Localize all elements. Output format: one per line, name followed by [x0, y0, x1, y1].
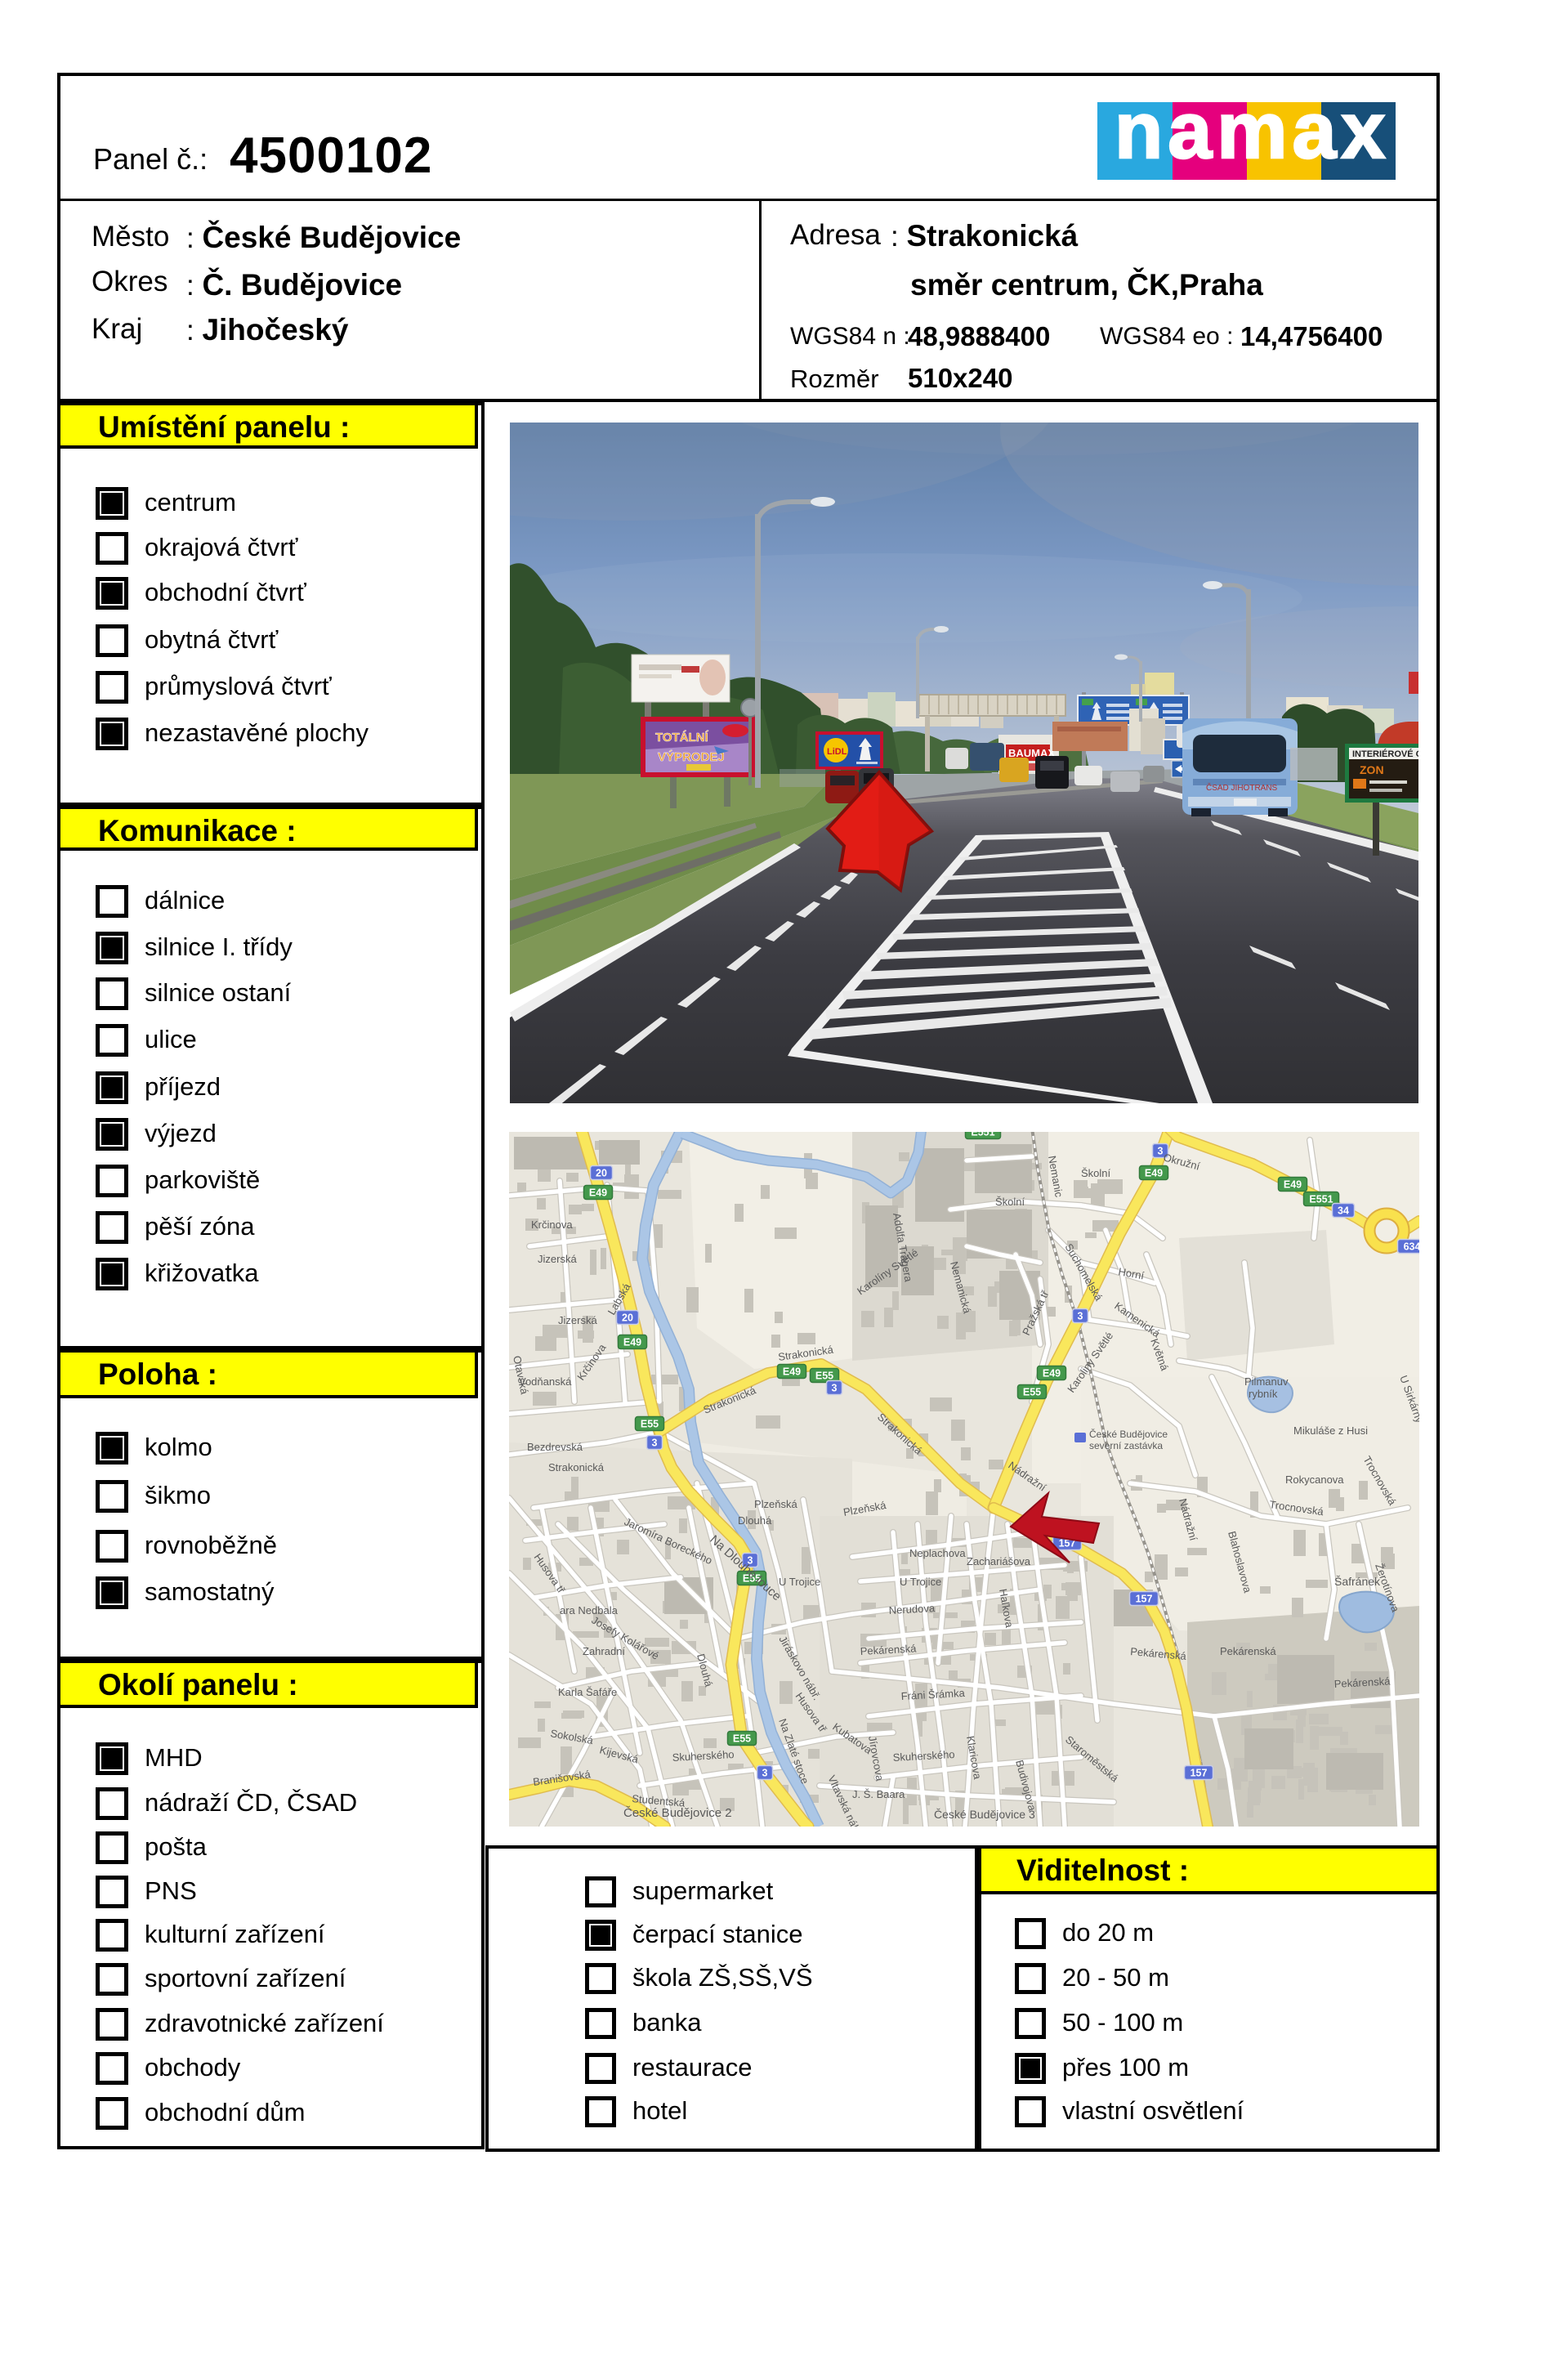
svg-text:3: 3 — [832, 1383, 838, 1394]
svg-text:TOTÁLNÍ: TOTÁLNÍ — [655, 731, 709, 745]
svg-text:E49: E49 — [783, 1366, 801, 1378]
svg-text:E49: E49 — [1284, 1179, 1302, 1191]
svg-text:České Budějovice 2: České Budějovice 2 — [623, 1806, 732, 1820]
svg-text:E49: E49 — [1043, 1368, 1061, 1380]
svg-text:rybník: rybník — [1249, 1388, 1278, 1400]
svg-text:E55: E55 — [815, 1371, 833, 1382]
svg-text:Dlouhá: Dlouhá — [738, 1514, 772, 1527]
svg-text:ZON: ZON — [1360, 763, 1384, 776]
svg-text:3: 3 — [762, 1768, 768, 1779]
svg-text:20: 20 — [622, 1312, 633, 1324]
svg-text:E55: E55 — [1023, 1387, 1041, 1398]
svg-text:20: 20 — [596, 1168, 607, 1179]
svg-text:Nerudova: Nerudova — [888, 1602, 936, 1617]
svg-text:634: 634 — [1404, 1241, 1419, 1253]
svg-text:Jizerská: Jizerská — [558, 1314, 597, 1326]
svg-text:3: 3 — [652, 1438, 658, 1449]
svg-text:J. Š. Baara: J. Š. Baara — [852, 1788, 905, 1800]
svg-text:Zachariášova: Zachariášova — [967, 1555, 1031, 1567]
svg-text:Šafránek: Šafránek — [1334, 1575, 1381, 1588]
svg-text:157: 157 — [1191, 1768, 1208, 1779]
svg-text:LiDL: LiDL — [827, 747, 847, 757]
svg-text:Krčinova: Krčinova — [531, 1219, 573, 1231]
svg-text:Rokycanova: Rokycanova — [1285, 1473, 1344, 1486]
svg-text:3: 3 — [1078, 1311, 1083, 1322]
svg-text:Zahradní: Zahradní — [583, 1645, 625, 1657]
svg-text:Strakonická: Strakonická — [548, 1461, 605, 1473]
svg-text:České Budějovice 3: České Budějovice 3 — [934, 1808, 1035, 1821]
svg-text:3: 3 — [1158, 1146, 1164, 1157]
svg-text:E49: E49 — [623, 1337, 641, 1348]
svg-text:České Budějovice: České Budějovice — [1089, 1428, 1168, 1440]
svg-text:U Trojice: U Trojice — [779, 1576, 820, 1588]
svg-text:Plzeňská: Plzeňská — [754, 1498, 798, 1510]
svg-text:E49: E49 — [1145, 1168, 1163, 1179]
svg-text:severní zastávka: severní zastávka — [1089, 1440, 1163, 1451]
svg-text:Školní: Školní — [1081, 1167, 1111, 1179]
svg-text:157: 157 — [1136, 1594, 1153, 1605]
svg-text:E49: E49 — [589, 1187, 607, 1199]
svg-text:Školní: Školní — [995, 1196, 1025, 1208]
svg-text:Karla Šafáře: Karla Šafáře — [558, 1686, 617, 1698]
svg-text:Pilmanuv: Pilmanuv — [1244, 1375, 1289, 1388]
svg-text:INTERIÉROVÉ O: INTERIÉROVÉ O — [1352, 749, 1418, 759]
svg-text:Jizerská: Jizerská — [538, 1253, 577, 1265]
svg-text:ara Nedbala: ara Nedbala — [560, 1604, 619, 1617]
svg-text:Pekárenská: Pekárenská — [1220, 1645, 1276, 1657]
svg-text:Mikuláše z Husi: Mikuláše z Husi — [1293, 1424, 1368, 1437]
svg-text:E551: E551 — [971, 1132, 994, 1138]
svg-text:Neplachova: Neplachova — [909, 1547, 966, 1559]
svg-text:Bezdrevská: Bezdrevská — [527, 1441, 583, 1453]
svg-text:ČSAD JIHOTRANS: ČSAD JIHOTRANS — [1206, 782, 1278, 793]
svg-text:Vodňanská: Vodňanská — [519, 1375, 572, 1388]
svg-text:E55: E55 — [641, 1419, 659, 1430]
svg-text:E551: E551 — [1309, 1194, 1333, 1205]
svg-text:VÝPRODEJ: VÝPRODEJ — [658, 749, 725, 764]
svg-text:U Trojice: U Trojice — [900, 1576, 941, 1588]
svg-text:E55: E55 — [733, 1733, 751, 1745]
svg-text:34: 34 — [1338, 1205, 1349, 1217]
